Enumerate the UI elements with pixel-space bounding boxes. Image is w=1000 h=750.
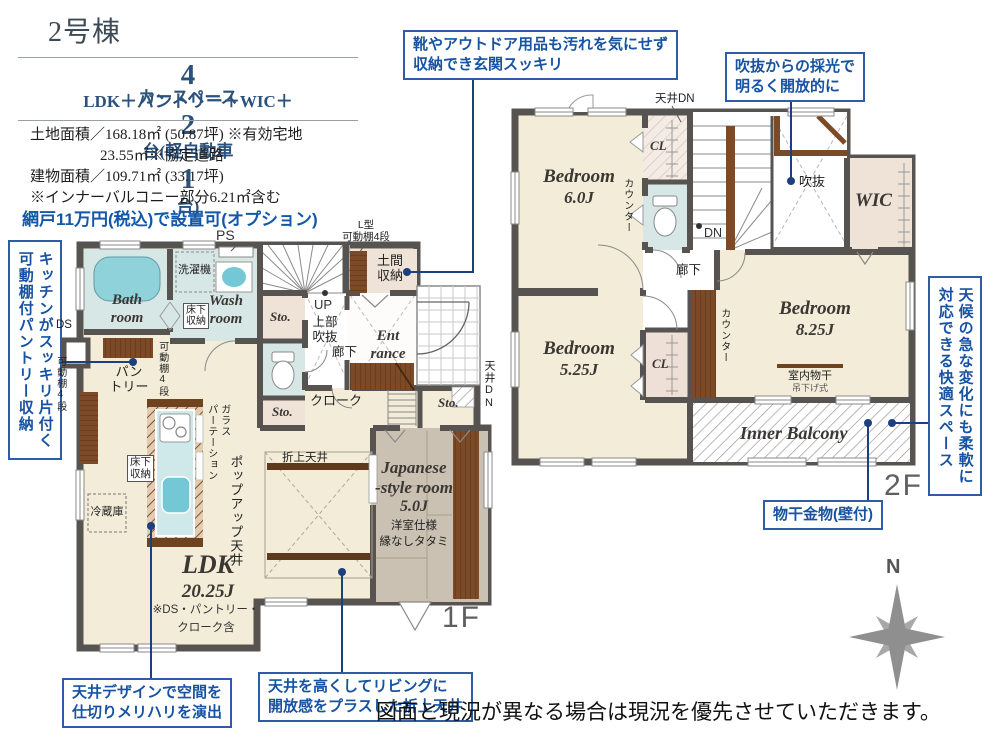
room-entrance: Entrance bbox=[362, 328, 414, 363]
indoor-drying-label: 室内物干 吊下げ式 bbox=[780, 370, 840, 394]
balcony-note: ※インナーバルコニー部分6.21㎡含む bbox=[30, 190, 281, 208]
divider-bottom bbox=[18, 120, 358, 121]
up-label: UP bbox=[314, 297, 332, 312]
washer-label: 洗濯機 bbox=[178, 264, 211, 277]
ldk-note: ※DS・パントリー・クローク含 bbox=[146, 604, 266, 635]
ps-label: PS bbox=[216, 227, 235, 244]
l-shelf-label: L型可動棚4段 bbox=[330, 219, 402, 244]
ds-label: DS bbox=[56, 319, 72, 333]
underfloor-storage-ldk: 床下収納 bbox=[127, 455, 154, 482]
compass-north-label: N bbox=[886, 556, 900, 580]
room-washroom: Washroom bbox=[202, 293, 250, 328]
floor-label-1f: 1F bbox=[442, 600, 481, 635]
underfloor-storage-wash: 床下収納 bbox=[183, 303, 209, 329]
counter-label-1: カウンター bbox=[621, 178, 633, 233]
room-bedroom-6: Bedroom 6.0J bbox=[531, 166, 627, 208]
land-area-2: 23.55㎡※協定道路 bbox=[100, 148, 224, 166]
land-area: 土地面積／168.18㎡ (50.87坪) ※有効宅地 bbox=[30, 127, 303, 145]
callout-ceiling-design: 天井デザインで空間を 仕切りメリハリを演出 bbox=[62, 678, 232, 728]
floor-label-2f: 2F bbox=[884, 468, 923, 503]
callout-pantry-shelf: キッチンがスッキリ片付く 可動棚付パントリー収納 bbox=[8, 240, 62, 460]
room-inner-balcony: Inner Balcony bbox=[740, 423, 848, 444]
hallway-label-2f: 廊下 bbox=[676, 263, 701, 278]
glass-label: ガラス bbox=[218, 404, 230, 437]
closet-label-1: CL bbox=[650, 138, 667, 153]
room-bathroom: Bathroom bbox=[97, 292, 157, 327]
coffered-ceiling-label: 折上天井 bbox=[282, 452, 328, 466]
upper-void-label: 上部吹抜 bbox=[308, 315, 342, 345]
storage-1: Sto. bbox=[270, 309, 291, 324]
pantry-label: パントリー bbox=[104, 364, 154, 395]
cloak-label: クローク bbox=[310, 393, 362, 408]
compass-rose bbox=[849, 584, 945, 690]
callout-drying-fixture: 物干金物(壁付) bbox=[763, 500, 883, 530]
ceiling-dn-label-2f: 天井DN bbox=[655, 93, 695, 107]
dn-label: DN bbox=[704, 226, 722, 241]
fridge-label: 冷蔵庫 bbox=[89, 506, 125, 519]
shelf4-label-b: 可動棚4段 bbox=[54, 356, 66, 412]
partition-label: パーテーション bbox=[205, 404, 217, 481]
building-area: 建物面積／109.71㎡ (33.17坪) bbox=[30, 169, 224, 187]
callout-void-light: 吹抜からの採光で 明るく開放的に bbox=[725, 52, 865, 102]
screen-option-note: 網戸11万円(税込)で設置可(オプション) bbox=[22, 210, 318, 230]
room-bedroom-825: Bedroom 8.25J bbox=[760, 298, 870, 340]
counter-label-2: カウンター bbox=[718, 308, 730, 363]
storage-3: Sto. bbox=[438, 395, 459, 410]
callout-entrance-storage: 靴やアウトドア用品も汚れを気にせず 収納でき玄関スッキリ bbox=[403, 30, 678, 80]
callout-inner-balcony: 天候の急な変化にも柔軟に 対応できる快適スペース bbox=[928, 276, 982, 496]
shelf4-label-a: 可動棚4段 bbox=[156, 341, 168, 397]
void-label: 吹抜 bbox=[799, 174, 825, 189]
room-wic: WIC bbox=[855, 190, 892, 212]
room-ldk: LDK 20.25J bbox=[163, 550, 253, 603]
room-japanese: Japanese -style room 5.0J 洋室仕様 縁なしタタミ bbox=[374, 458, 454, 549]
disclaimer-text: 図面と現況が異なる場合は現況を優先させていただきます。 bbox=[376, 701, 941, 726]
closet-label-2: CL bbox=[652, 356, 669, 371]
floorplan-page: 2号棟 4LDK＋パントリー＋WIC＋ カースペース2台(軽自動車1台) 土地面… bbox=[0, 0, 1000, 750]
room-bedroom-525: Bedroom 5.25J bbox=[531, 338, 627, 380]
storage-2: Sto. bbox=[272, 404, 293, 419]
ceiling-dn-label-1f: 天井DN bbox=[482, 360, 495, 410]
building-title: 2号棟 bbox=[48, 16, 121, 49]
doma-storage-label: 土間収納 bbox=[368, 253, 412, 284]
hallway-label-1f: 廊下 bbox=[332, 345, 357, 360]
